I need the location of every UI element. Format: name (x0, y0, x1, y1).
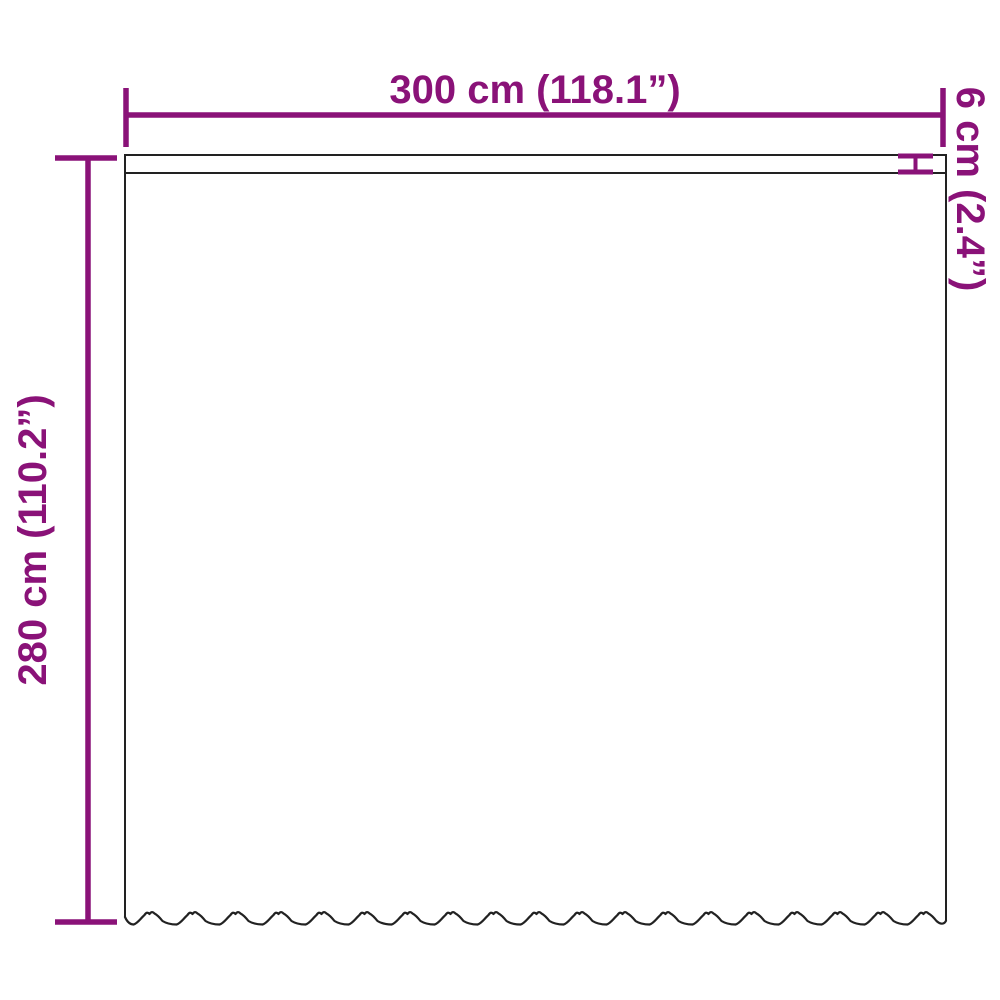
diagram-linework (0, 0, 1000, 1000)
strip-dimension-label: 6 cm (2.4”) (950, 87, 990, 292)
height-dimension-line (55, 158, 117, 922)
strip-dimension-marker (898, 156, 933, 172)
dimension-diagram: 300 cm (118.1”) 280 cm (110.2”) 6 cm (2.… (0, 0, 1000, 1000)
width-dimension-label: 300 cm (118.1”) (389, 70, 680, 110)
wavy-hem-edge (125, 912, 946, 924)
height-dimension-label: 280 cm (110.2”) (13, 394, 53, 685)
curtain-outline (125, 155, 946, 921)
